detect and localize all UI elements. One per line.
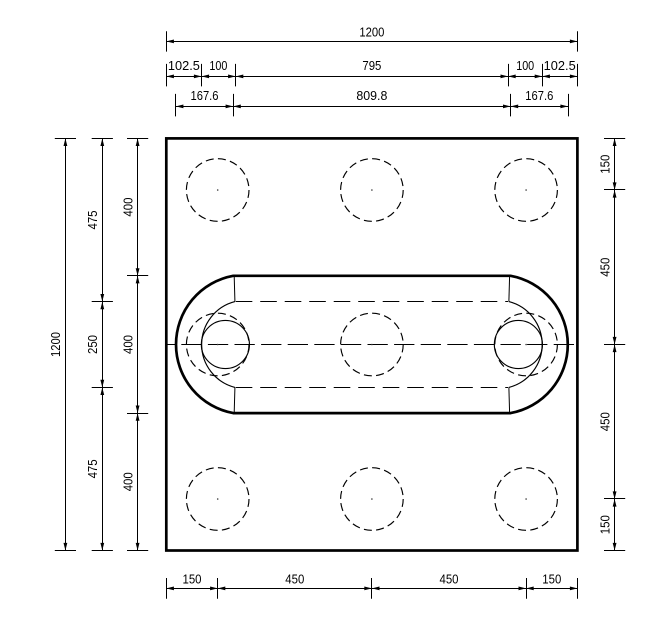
- svg-text:795: 795: [362, 59, 381, 73]
- svg-text:400: 400: [121, 472, 135, 491]
- svg-text:102.5: 102.5: [168, 59, 200, 73]
- svg-text:250: 250: [86, 335, 100, 354]
- svg-text:150: 150: [598, 515, 612, 534]
- svg-text:475: 475: [86, 210, 100, 229]
- svg-text:450: 450: [440, 573, 459, 587]
- svg-text:150: 150: [598, 155, 612, 174]
- svg-text:167.6: 167.6: [525, 89, 553, 103]
- svg-text:1200: 1200: [359, 26, 384, 40]
- svg-text:150: 150: [542, 573, 561, 587]
- svg-text:450: 450: [598, 258, 612, 277]
- svg-text:809.8: 809.8: [356, 89, 387, 103]
- svg-text:1200: 1200: [49, 332, 63, 357]
- svg-text:400: 400: [121, 198, 135, 217]
- svg-text:475: 475: [86, 459, 100, 478]
- svg-text:100: 100: [516, 59, 534, 73]
- svg-text:100: 100: [209, 59, 227, 73]
- svg-text:102.5: 102.5: [544, 59, 576, 73]
- svg-text:167.6: 167.6: [191, 89, 219, 103]
- svg-text:150: 150: [183, 573, 202, 587]
- svg-text:400: 400: [121, 335, 135, 354]
- svg-text:450: 450: [285, 573, 304, 587]
- svg-text:450: 450: [598, 412, 612, 431]
